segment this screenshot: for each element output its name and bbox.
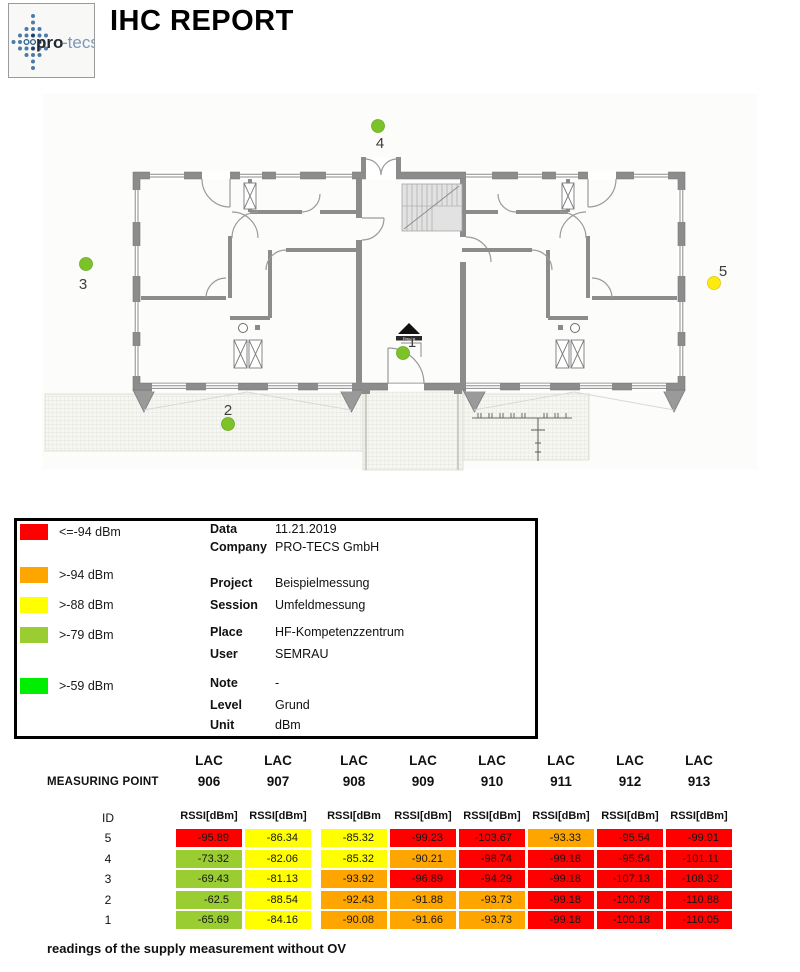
lac-label: LAC [321,750,387,771]
rssi-cell: -103.67 [459,829,525,847]
lac-number: 908 [321,771,387,792]
info-label: Unit [210,718,234,732]
rssi-cell: -86.34 [245,829,311,847]
lac-label: LAC [245,750,311,771]
info-label: User [210,647,238,661]
table-row: -73.32-82.06-85.32-90.21-98.74-99.18-95.… [176,850,735,868]
lac-number: 906 [176,771,242,792]
rssi-cell: -91.88 [390,891,456,909]
rssi-header: RSSI[dBm] [459,810,525,822]
lac-number: 912 [597,771,663,792]
legend-info-box: <=-94 dBm>-94 dBm>-88 dBm>-79 dBm>-59 dB… [14,518,538,739]
rssi-cell: -107.13 [597,870,663,888]
rssi-header: RSSI[dBm] [597,810,663,822]
rssi-cell: -93.92 [321,870,387,888]
measurement-point-label-2: 2 [224,402,232,419]
lac-label: LAC [176,750,242,771]
info-label: Place [210,625,243,639]
rssi-cell: -88.54 [245,891,311,909]
table-row: -69.43-81.13-93.92-96.89-94.29-99.18-107… [176,870,735,888]
rssi-cell: -69.43 [176,870,242,888]
info-label: Company [210,540,267,554]
lac-header-row: LAC906LAC907LAC908LAC909LAC910LAC911LAC9… [176,750,735,792]
rssi-table-body: -95.89-86.34-85.32-99.23-103.67-93.33-95… [176,829,735,932]
info-value: Grund [275,698,310,712]
floor-plan: Eingang 12345 [0,90,800,475]
rssi-cell: -91.66 [390,911,456,929]
rssi-cell: -108.32 [666,870,732,888]
lac-header: LAC912 [597,750,663,792]
info-label: Level [210,698,242,712]
id-column: 54321 [90,829,126,932]
pro-tecs-logo: pro -tecs [8,3,95,78]
measurement-point-dot-3 [80,258,93,271]
lac-header: LAC908 [321,750,387,792]
rssi-cell: -93.33 [528,829,594,847]
measuring-point-label: MEASURING POINT [47,776,159,788]
legend-swatch [20,678,48,694]
info-label: Note [210,676,238,690]
info-label: Project [210,576,252,590]
lac-label: LAC [597,750,663,771]
rssi-cell: -65.69 [176,911,242,929]
lac-label: LAC [459,750,525,771]
measurement-point-label-5: 5 [719,263,727,280]
legend-label: >-94 dBm [59,567,114,583]
footer-note: readings of the supply measurement witho… [47,941,346,956]
info-value: Umfeldmessung [275,598,365,612]
lac-label: LAC [666,750,732,771]
lac-header: LAC906 [176,750,242,792]
rssi-cell: -92.43 [321,891,387,909]
info-value: 11.21.2019 [275,522,337,536]
rssi-cell: -84.16 [245,911,311,929]
rssi-cell: -81.13 [245,870,311,888]
lac-header: LAC911 [528,750,594,792]
rssi-cell: -82.06 [245,850,311,868]
rssi-cell: -98.74 [459,850,525,868]
rssi-cell: -94.29 [459,870,525,888]
page-title: IHC REPORT [110,5,294,38]
rssi-header: RSSI[dBm] [666,810,732,822]
rssi-cell: -99.23 [390,829,456,847]
lac-header: LAC909 [390,750,456,792]
legend-label: >-79 dBm [59,627,114,643]
info-value: - [275,676,279,690]
rssi-header: RSSI[dBm] [245,810,311,822]
row-id: 1 [90,911,126,929]
measurement-point-label-1: 1 [408,334,416,351]
rssi-header: RSSI[dBm] [528,810,594,822]
rssi-cell: -99.18 [528,870,594,888]
rssi-cell: -95.54 [597,829,663,847]
rssi-cell: -110.05 [666,911,732,929]
rssi-cell: -90.21 [390,850,456,868]
measurement-point-label-3: 3 [79,276,87,293]
info-label: Data [210,522,237,536]
logo-text-bold: pro [36,33,63,52]
id-column-label: ID [90,811,126,825]
lac-number: 909 [390,771,456,792]
rssi-cell: -73.32 [176,850,242,868]
legend-swatch [20,567,48,583]
lac-header: LAC910 [459,750,525,792]
table-row: -95.89-86.34-85.32-99.23-103.67-93.33-95… [176,829,735,847]
measurement-point-dot-2 [222,418,235,431]
row-id: 5 [90,829,126,847]
lac-label: LAC [528,750,594,771]
entrance-bay [361,157,401,180]
legend-swatch [20,597,48,613]
rssi-header: RSSI[dBm] [176,810,242,822]
measurement-point-label-4: 4 [376,135,384,152]
rssi-cell: -101.11 [666,850,732,868]
rssi-cell: -90.08 [321,911,387,929]
rssi-cell: -95.89 [176,829,242,847]
rssi-cell: -99.18 [528,891,594,909]
rssi-cell: -100.78 [597,891,663,909]
pro-tecs-logo-graphic: pro -tecs [9,4,94,77]
rssi-header: RSSI[dBm] [390,810,456,822]
rssi-header-row: RSSI[dBm]RSSI[dBm]RSSI[dBmRSSI[dBm]RSSI[… [176,810,735,822]
info-value: Beispielmessung [275,576,370,590]
lac-label: LAC [390,750,456,771]
rssi-cell: -85.32 [321,850,387,868]
rssi-cell: -93.73 [459,911,525,929]
rssi-cell: -93.73 [459,891,525,909]
staircase [402,184,462,231]
logo-text-light: -tecs [62,33,94,52]
rssi-cell: -110.88 [666,891,732,909]
lac-number: 907 [245,771,311,792]
legend-label: >-88 dBm [59,597,114,613]
lac-number: 913 [666,771,732,792]
row-id: 4 [90,850,126,868]
info-value: PRO-TECS GmbH [275,540,379,554]
lac-number: 911 [528,771,594,792]
info-value: HF-Kompetenzzentrum [275,625,404,639]
info-value: dBm [275,718,301,732]
rssi-cell: -96.89 [390,870,456,888]
rssi-cell: -99.91 [666,829,732,847]
legend-swatch [20,524,48,540]
row-id: 2 [90,891,126,909]
rssi-header: RSSI[dBm [321,810,387,822]
rssi-cell: -99.18 [528,911,594,929]
legend-label: <=-94 dBm [59,524,121,540]
legend-label: >-59 dBm [59,678,114,694]
rssi-cell: -85.32 [321,829,387,847]
measurement-point-dot-4 [372,120,385,133]
row-id: 3 [90,870,126,888]
ihc-report-page: { "header": { "title": "IHC REPORT", "lo… [0,0,800,972]
lac-header: LAC913 [666,750,732,792]
info-label: Session [210,598,258,612]
table-row: -62.5-88.54-92.43-91.88-93.73-99.18-100.… [176,891,735,909]
table-row: -65.69-84.16-90.08-91.66-93.73-99.18-100… [176,911,735,929]
rssi-cell: -62.5 [176,891,242,909]
lac-number: 910 [459,771,525,792]
rssi-cell: -99.18 [528,850,594,868]
lac-header: LAC907 [245,750,311,792]
info-value: SEMRAU [275,647,328,661]
legend-swatch [20,627,48,643]
rssi-cell: -100.18 [597,911,663,929]
rssi-cell: -95.54 [597,850,663,868]
